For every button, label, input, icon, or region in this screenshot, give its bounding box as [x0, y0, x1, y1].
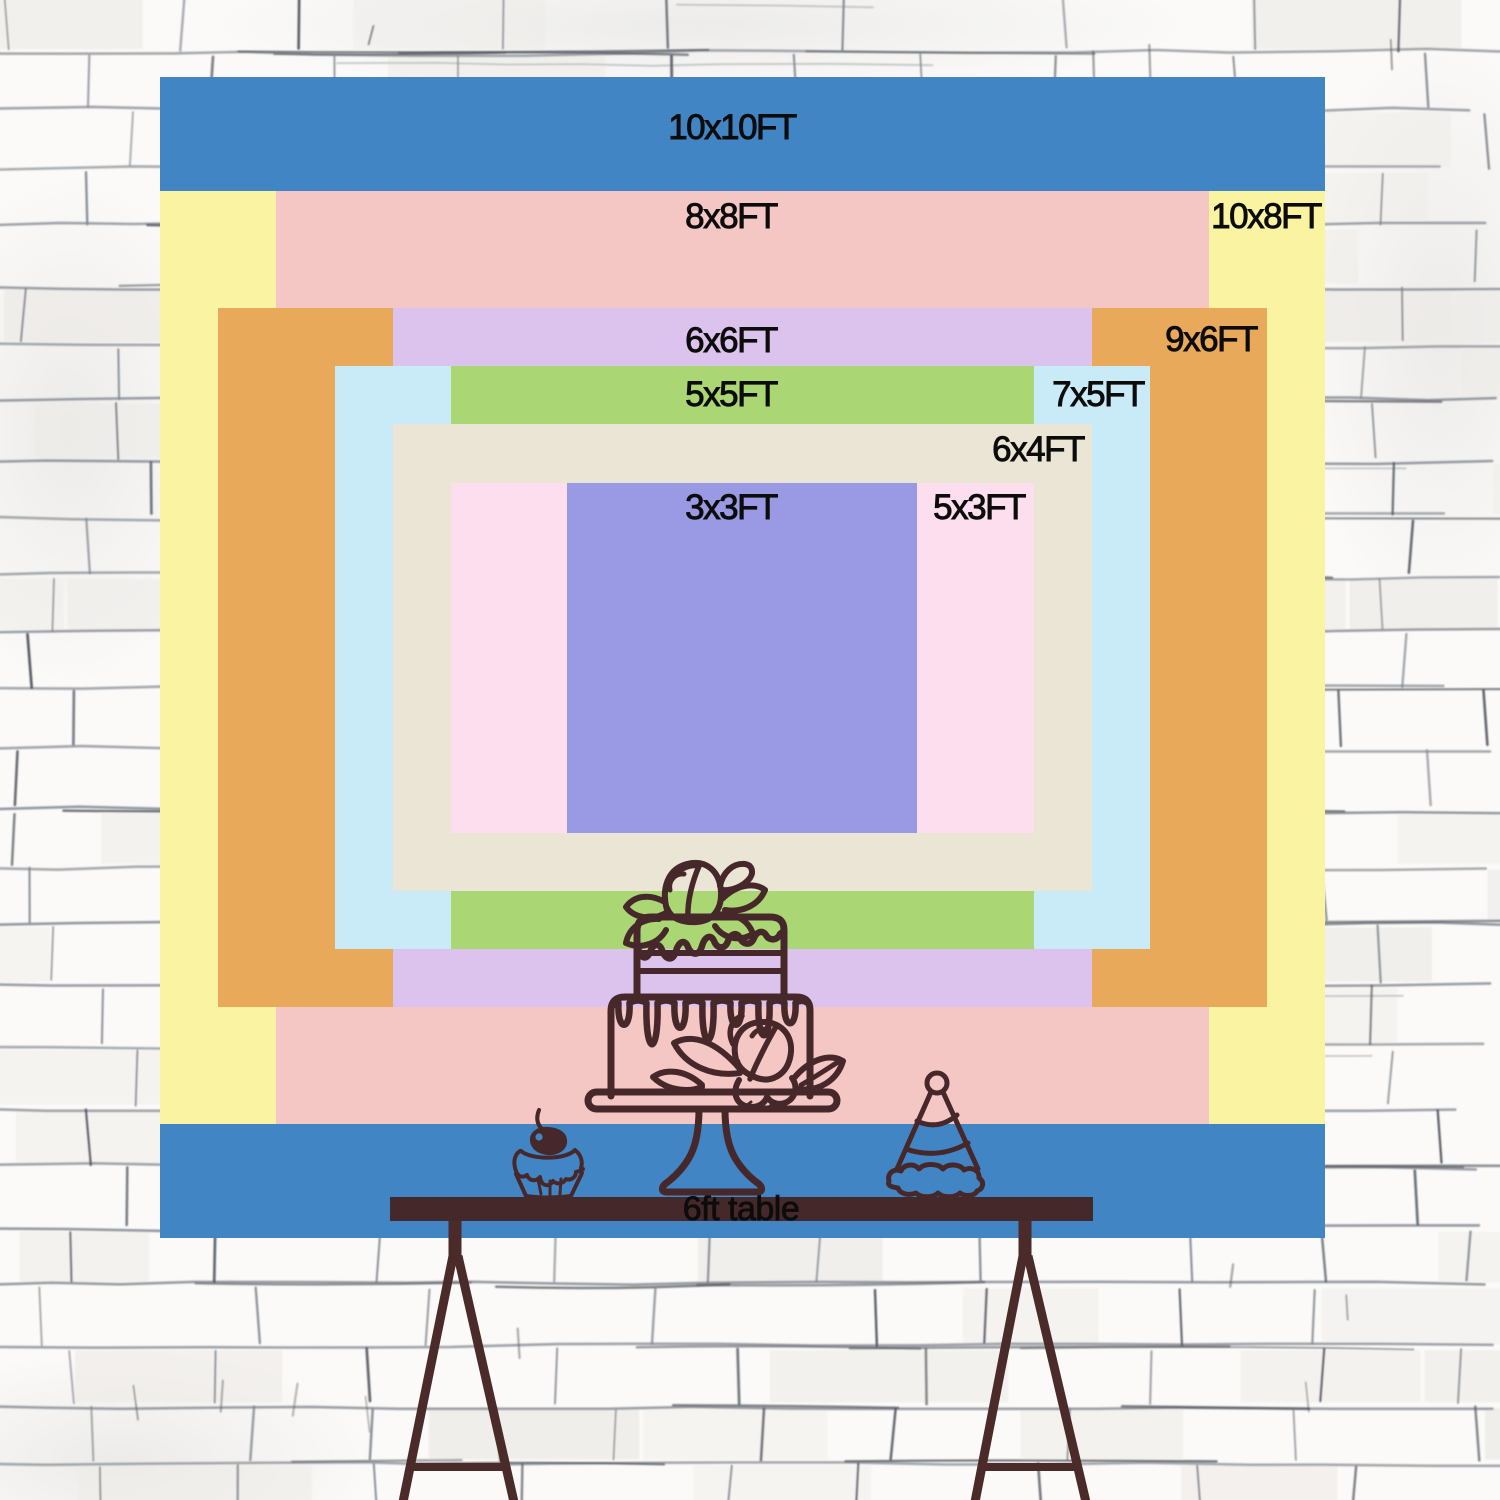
svg-text:3x3FT: 3x3FT — [685, 488, 778, 527]
svg-text:5x5FT: 5x5FT — [685, 375, 778, 414]
svg-text:10x8FT: 10x8FT — [1211, 197, 1322, 236]
svg-text:8x8FT: 8x8FT — [685, 197, 778, 236]
svg-text:5x3FT: 5x3FT — [933, 488, 1026, 527]
svg-text:9x6FT: 9x6FT — [1165, 320, 1258, 359]
svg-text:6ft table: 6ft table — [683, 1190, 799, 1228]
svg-text:6x6FT: 6x6FT — [685, 321, 778, 360]
svg-text:7x5FT: 7x5FT — [1052, 375, 1145, 414]
svg-text:6x4FT: 6x4FT — [992, 430, 1085, 469]
svg-text:10x10FT: 10x10FT — [668, 108, 797, 147]
